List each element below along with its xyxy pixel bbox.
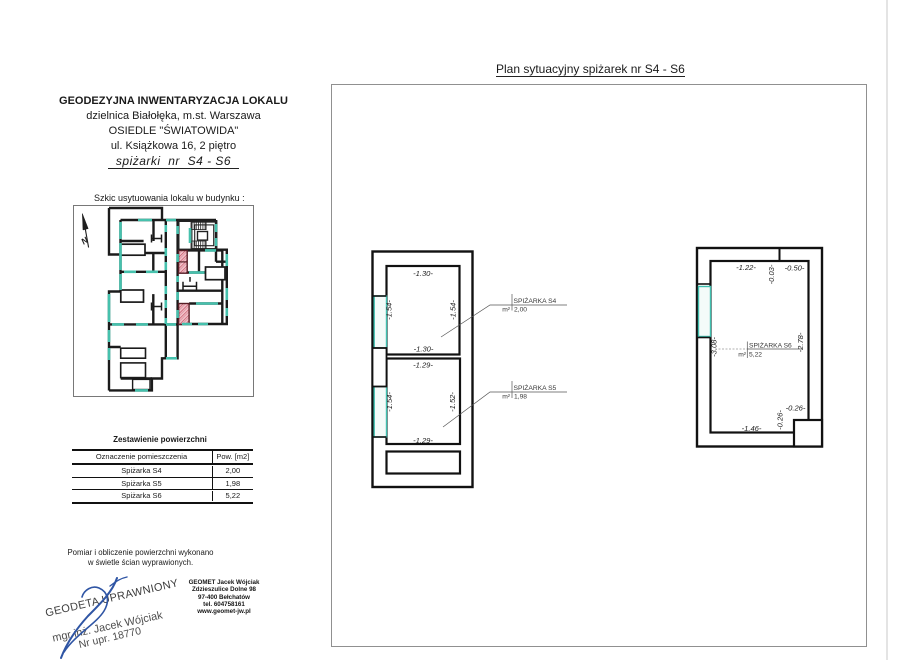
svg-text:m²: m² xyxy=(502,394,511,401)
svg-text:SPIŻARKA S6: SPIŻARKA S6 xyxy=(749,341,792,350)
svg-text:-1.30-: -1.30- xyxy=(413,269,433,278)
svg-text:-1.30-: -1.30- xyxy=(414,345,434,354)
svg-text:2,00: 2,00 xyxy=(514,307,527,314)
svg-text:-0.03-: -0.03- xyxy=(767,264,776,284)
svg-text:SPIŻARKA S5: SPIŻARKA S5 xyxy=(514,383,557,392)
svg-text:-1.22-: -1.22- xyxy=(736,263,756,272)
svg-text:m²: m² xyxy=(738,352,747,359)
svg-text:SPIŻARKA S4: SPIŻARKA S4 xyxy=(514,296,557,305)
svg-text:m²: m² xyxy=(502,307,511,314)
svg-text:-1.52-: -1.52- xyxy=(448,392,457,412)
svg-text:-1.29-: -1.29- xyxy=(413,360,433,369)
svg-text:-2.78-: -2.78- xyxy=(796,332,805,352)
svg-text:-0.50-: -0.50- xyxy=(785,264,805,273)
svg-text:-1.54-: -1.54- xyxy=(385,300,394,320)
svg-text:-1.46-: -1.46- xyxy=(742,424,762,433)
svg-text:-0.26-: -0.26- xyxy=(786,404,806,413)
svg-text:-1.54-: -1.54- xyxy=(449,300,458,320)
svg-text:5,22: 5,22 xyxy=(749,352,762,359)
svg-text:-3.08-: -3.08- xyxy=(710,337,719,357)
svg-text:-1.29-: -1.29- xyxy=(413,436,433,445)
svg-text:1,98: 1,98 xyxy=(514,394,527,401)
svg-text:N: N xyxy=(79,234,91,246)
svg-text:-0.26-: -0.26- xyxy=(776,410,785,430)
svg-text:-1.54-: -1.54- xyxy=(385,392,394,412)
